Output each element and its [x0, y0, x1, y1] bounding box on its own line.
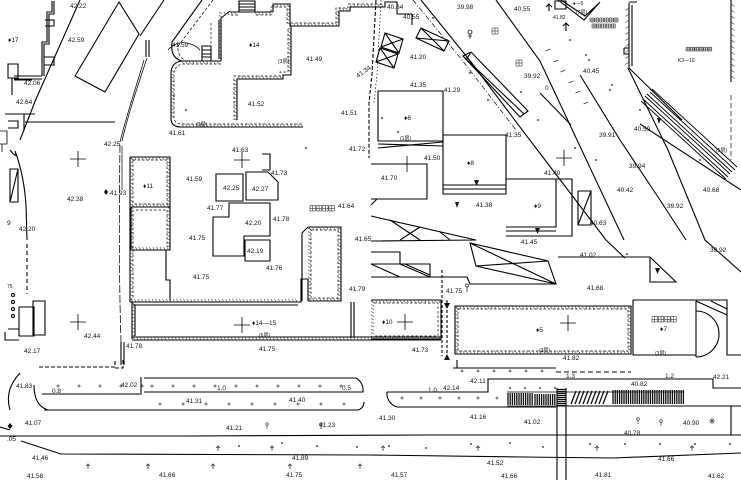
svg-text:41.35: 41.35: [505, 132, 522, 139]
svg-text:42.27: 42.27: [252, 186, 269, 193]
svg-text:41.35: 41.35: [410, 82, 427, 89]
svg-text:41.77: 41.77: [207, 205, 224, 212]
svg-text:41.61: 41.61: [169, 130, 186, 137]
svg-text:41.46: 41.46: [32, 455, 49, 462]
svg-text:(5层): (5层): [716, 148, 727, 154]
svg-text:42.25: 42.25: [104, 141, 121, 148]
svg-text:1.0: 1.0: [428, 387, 437, 394]
svg-text:41.40: 41.40: [544, 170, 561, 177]
svg-text:41.63: 41.63: [232, 147, 249, 154]
svg-text:41.50: 41.50: [424, 155, 441, 162]
svg-text:41.52: 41.52: [487, 460, 504, 467]
svg-text:♦8: ♦8: [467, 160, 474, 167]
svg-text:42.20: 42.20: [245, 220, 262, 227]
svg-text:0.8: 0.8: [52, 388, 61, 395]
svg-text:42.64: 42.64: [16, 99, 33, 106]
svg-text:41.93: 41.93: [110, 190, 127, 197]
svg-text:41.29: 41.29: [444, 87, 461, 94]
svg-text:41.78: 41.78: [126, 343, 143, 350]
svg-text:41.76: 41.76: [266, 265, 283, 272]
svg-text:40.64: 40.64: [387, 4, 404, 11]
svg-text:41.31: 41.31: [186, 398, 203, 405]
svg-text:41.65: 41.65: [355, 236, 372, 243]
svg-text:40.82: 40.82: [631, 381, 648, 388]
svg-text:♦9: ♦9: [534, 203, 541, 210]
svg-text:41.81: 41.81: [595, 472, 612, 479]
svg-text:42.44: 42.44: [84, 333, 101, 340]
svg-text:41.64: 41.64: [338, 203, 355, 210]
svg-text:40.63: 40.63: [590, 220, 607, 227]
svg-text:41.20: 41.20: [410, 54, 427, 61]
svg-text:39.92: 39.92: [667, 203, 684, 210]
svg-text:39.91: 39.91: [599, 132, 616, 139]
svg-text:41.72: 41.72: [349, 146, 366, 153]
svg-text:41.30: 41.30: [379, 415, 396, 422]
svg-text:41.59: 41.59: [172, 42, 189, 49]
svg-text:♦6: ♦6: [404, 115, 411, 122]
svg-text:(3层): (3层): [655, 351, 666, 357]
svg-text:0: 0: [545, 85, 549, 92]
svg-text:42.38: 42.38: [67, 196, 84, 203]
svg-text:40.59: 40.59: [634, 126, 651, 133]
svg-text:41.75: 41.75: [286, 472, 303, 479]
svg-text:41.16: 41.16: [470, 414, 487, 421]
svg-text:42.17: 42.17: [24, 348, 41, 355]
svg-text:41.82: 41.82: [563, 355, 580, 362]
svg-text:♦14—15: ♦14—15: [252, 320, 277, 327]
svg-text:42.02: 42.02: [121, 382, 138, 389]
svg-text:41.34: 41.34: [355, 64, 373, 79]
svg-text:41.52: 41.52: [248, 101, 265, 108]
svg-text:1.0: 1.0: [217, 385, 226, 392]
svg-text:41.89: 41.89: [292, 455, 309, 462]
svg-text:41.62: 41.62: [708, 473, 725, 480]
svg-text:♦17: ♦17: [8, 37, 19, 44]
svg-text:42.14: 42.14: [443, 385, 460, 392]
svg-text:41.78: 41.78: [273, 216, 290, 223]
svg-text:41.21: 41.21: [226, 425, 243, 432]
svg-text:40.45: 40.45: [583, 68, 600, 75]
svg-text:41.75: 41.75: [193, 274, 210, 281]
svg-text:41.02: 41.02: [580, 252, 597, 259]
svg-text:40.90: 40.90: [683, 420, 700, 427]
svg-text:41.07: 41.07: [25, 420, 42, 427]
svg-text:75: 75: [7, 284, 13, 290]
svg-text:40.55: 40.55: [514, 6, 531, 13]
svg-text:41.75: 41.75: [259, 346, 276, 353]
svg-text:41.59: 41.59: [186, 176, 203, 183]
svg-text:41.51: 41.51: [341, 110, 358, 117]
svg-text:42.21: 42.21: [713, 374, 730, 381]
svg-text:42.11: 42.11: [470, 378, 486, 385]
svg-text:41.70: 41.70: [381, 175, 398, 182]
svg-text:(7层): (7层): [576, 10, 587, 16]
svg-text:41.75: 41.75: [446, 288, 463, 295]
svg-text:41.45: 41.45: [521, 239, 538, 246]
svg-text:39.94: 39.94: [629, 163, 646, 170]
svg-text:41.79: 41.79: [349, 286, 366, 293]
svg-text:1.3: 1.3: [566, 373, 575, 380]
svg-text:41.58: 41.58: [27, 473, 44, 480]
svg-text:41.73: 41.73: [412, 347, 429, 354]
svg-text:(3层): (3层): [539, 348, 550, 354]
svg-text:♦11: ♦11: [143, 183, 153, 190]
svg-text:41.83: 41.83: [16, 383, 33, 390]
svg-text:41.02: 41.02: [524, 419, 541, 426]
svg-text:40.78: 40.78: [624, 430, 641, 437]
svg-text:40.55: 40.55: [403, 14, 420, 21]
svg-text:♦10: ♦10: [382, 319, 393, 326]
svg-text:41.82: 41.82: [553, 15, 566, 21]
svg-text:.05: .05: [7, 436, 16, 443]
svg-text:41.38: 41.38: [476, 202, 493, 209]
svg-text:41.23: 41.23: [319, 422, 336, 429]
svg-text:41.73: 41.73: [271, 170, 288, 177]
svg-text:(1层): (1层): [400, 136, 411, 142]
svg-text:0.5: 0.5: [342, 385, 351, 392]
svg-text:41.66: 41.66: [658, 456, 675, 463]
svg-text:♦7: ♦7: [660, 326, 667, 333]
svg-text:39.92: 39.92: [710, 247, 727, 254]
svg-text:1.2: 1.2: [665, 373, 674, 380]
svg-text:41.75: 41.75: [189, 235, 206, 242]
svg-text:(3层): (3层): [278, 59, 289, 65]
svg-text:40.68: 40.68: [703, 187, 720, 194]
svg-text:42.22: 42.22: [70, 3, 87, 10]
svg-text:42.20: 42.20: [19, 226, 36, 233]
svg-text:42.59: 42.59: [68, 37, 85, 44]
svg-text:41.49: 41.49: [306, 56, 323, 63]
svg-text:41.66: 41.66: [501, 473, 518, 480]
svg-text:41.57: 41.57: [391, 472, 408, 479]
svg-text:K3—16: K3—16: [678, 58, 695, 64]
svg-text:(6层): (6层): [259, 333, 270, 339]
svg-text:♦14: ♦14: [249, 42, 260, 49]
svg-text:40.42: 40.42: [617, 187, 634, 194]
svg-text:♦5: ♦5: [536, 327, 543, 334]
svg-text:42.19: 42.19: [247, 248, 264, 255]
svg-text:39.92: 39.92: [524, 73, 541, 80]
svg-text:39.98: 39.98: [457, 4, 474, 11]
svg-text:42.25: 42.25: [223, 185, 240, 192]
svg-text:♦—5: ♦—5: [573, 1, 584, 7]
svg-text:42.06: 42.06: [24, 80, 41, 87]
svg-text:9: 9: [7, 220, 11, 227]
svg-text:(3层): (3层): [196, 122, 207, 128]
svg-text:41.40: 41.40: [289, 397, 306, 404]
svg-text:41.66: 41.66: [159, 472, 176, 479]
svg-text:41.68: 41.68: [587, 285, 604, 292]
